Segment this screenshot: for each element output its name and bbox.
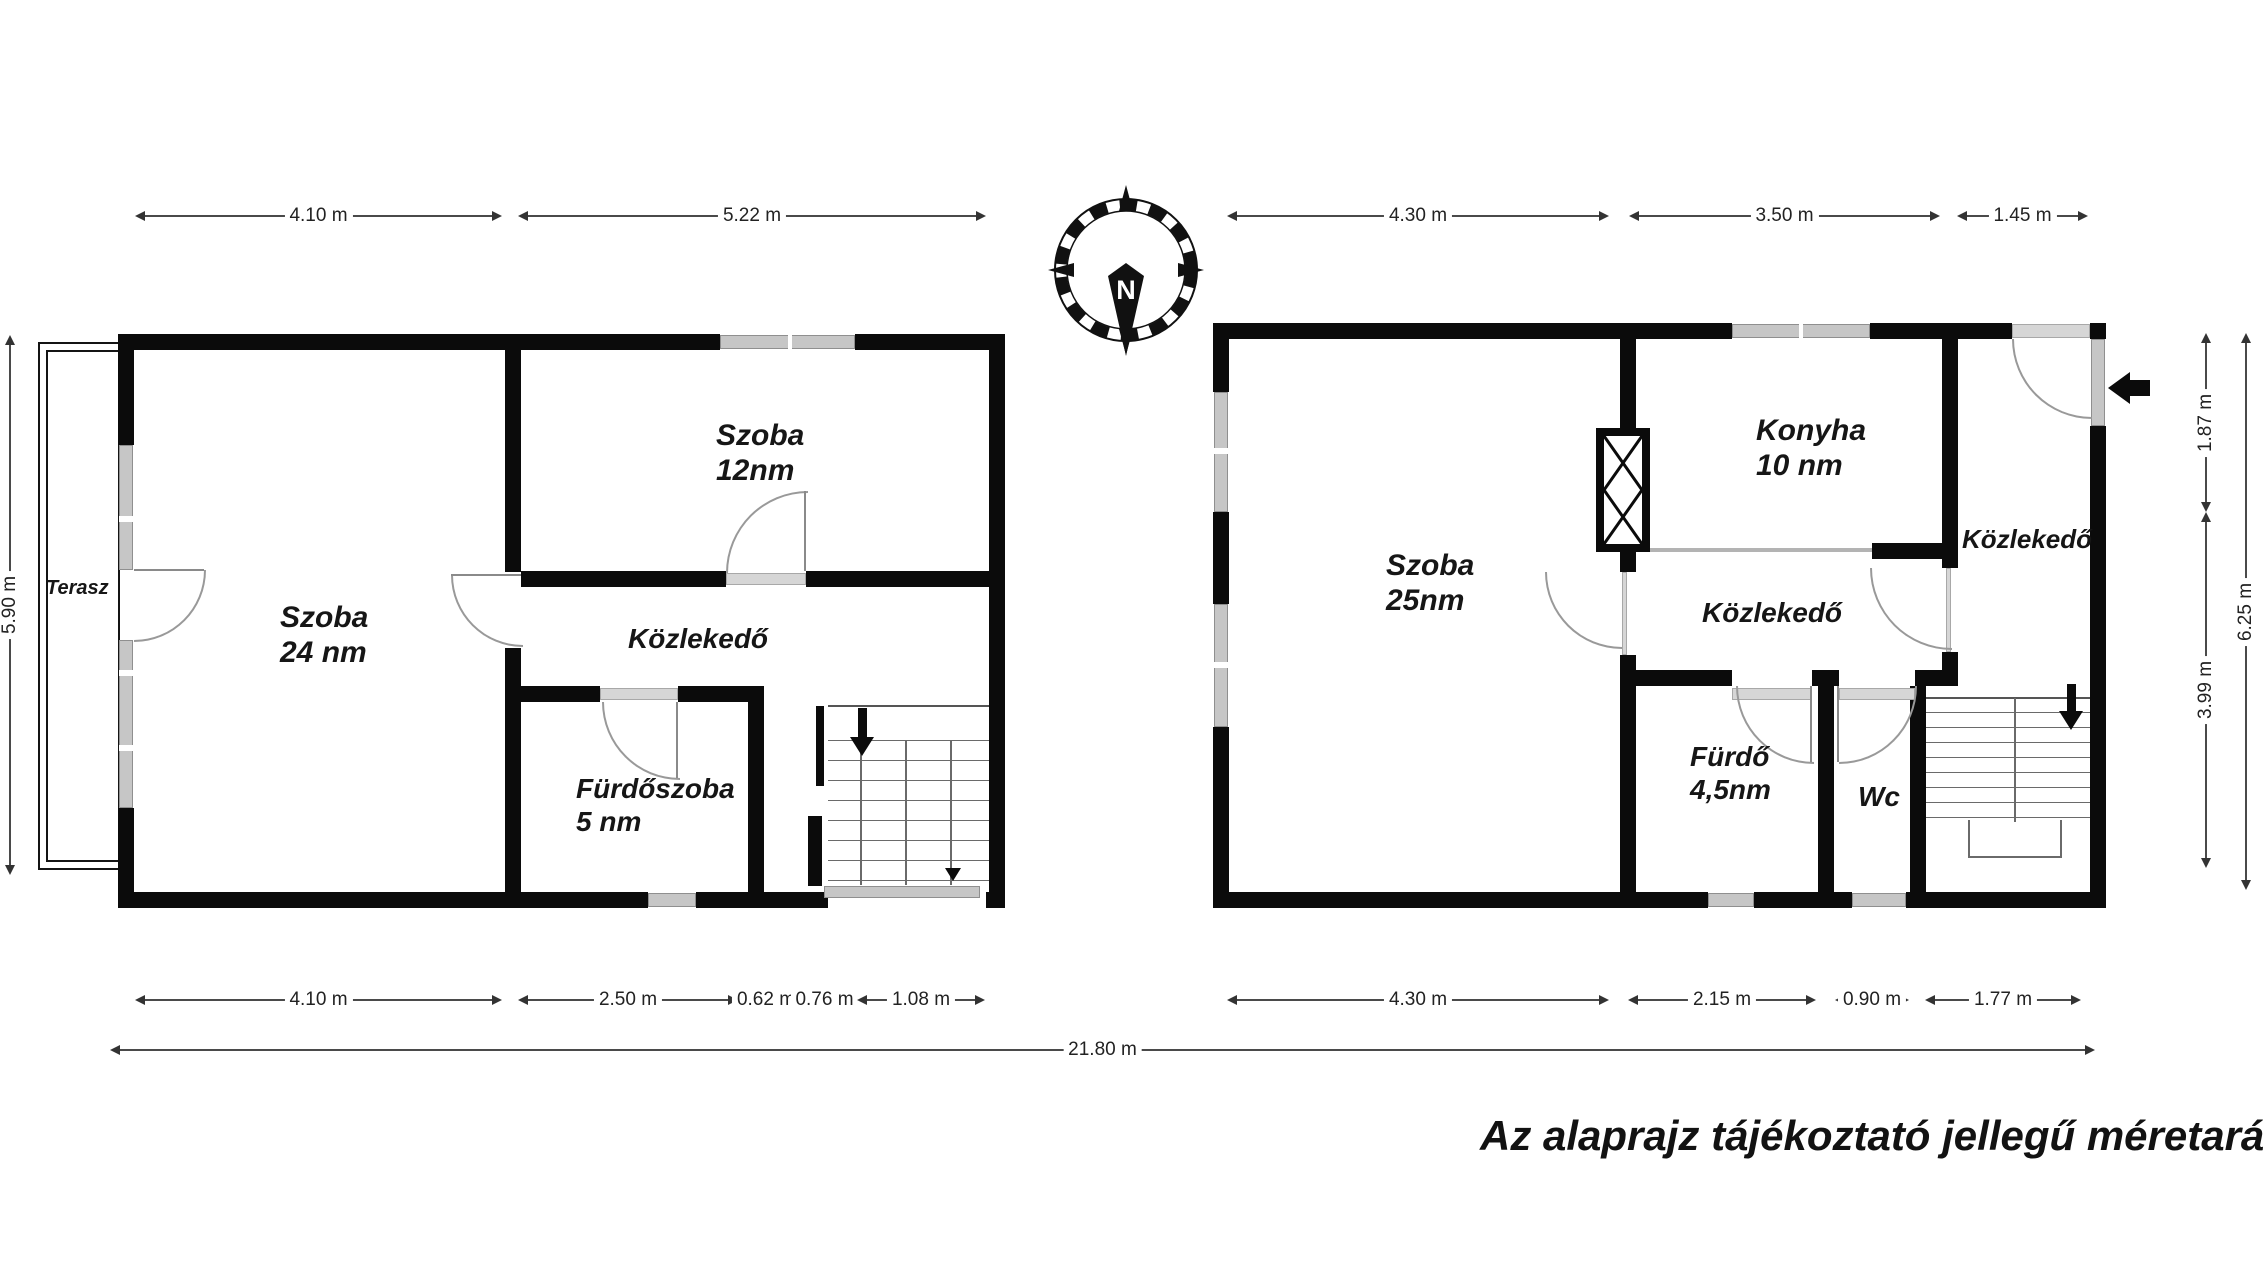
wall <box>2090 426 2106 908</box>
stairs-arrow-icon-right <box>2059 711 2083 730</box>
compass-spike-west <box>1048 263 1074 277</box>
dimension-bottom: 0.90 m <box>1835 990 1909 1010</box>
dimension-vertical: 3.99 m <box>2196 512 2216 868</box>
room-label-szoba24: Szoba 24 nm <box>280 600 368 671</box>
door-leaf <box>134 569 204 571</box>
window-mullion <box>119 670 133 676</box>
door-threshold <box>726 573 806 585</box>
stairs-arrow-shaft-right <box>2067 684 2076 712</box>
door-swing-arc <box>726 491 808 573</box>
door-leaf <box>804 491 806 571</box>
dim-label: 0.76 m <box>790 989 858 1011</box>
wall <box>1213 892 1708 908</box>
dim-label: 6.25 m <box>2235 577 2257 645</box>
door-swing-arc <box>134 570 206 642</box>
wall <box>816 706 824 786</box>
dim-arrow-right <box>1599 995 1609 1005</box>
room-label-wc: Wc <box>1858 780 1900 813</box>
door-leaf <box>1810 686 1812 762</box>
dim-arrow-right <box>492 995 502 1005</box>
wall <box>1910 686 1926 892</box>
floor-plan-canvas: 4.10 m5.22 m4.30 m3.50 m1.45 m4.10 m2.50… <box>0 0 2265 1280</box>
door-swing-arc <box>451 575 523 647</box>
dim-arrow-left <box>1628 995 1638 1005</box>
dimension-bottom: 2.50 m <box>518 990 738 1010</box>
dim-arrow-left <box>1227 211 1237 221</box>
wall <box>1818 686 1834 892</box>
dim-arrow-right <box>976 211 986 221</box>
dim-label: 2.50 m <box>594 989 662 1011</box>
room-label-furdo: Fürdő 4,5nm <box>1690 740 1771 806</box>
dim-arrow-right <box>2078 211 2088 221</box>
wall <box>1754 892 1852 908</box>
window <box>1852 893 1906 907</box>
dim-arrow-down <box>2201 502 2211 512</box>
stairs-arrow-shaft-left <box>858 708 867 738</box>
wall <box>505 350 521 572</box>
window-mullion <box>1214 448 1228 454</box>
dimension-bottom: 0.62 m <box>740 990 792 1010</box>
dimension-bottom: 0.76 m <box>797 990 852 1010</box>
dim-arrow-left <box>135 995 145 1005</box>
wall <box>1213 727 1229 908</box>
room-label-szoba12: Szoba 12nm <box>716 418 804 489</box>
window-mullion <box>788 335 792 349</box>
window <box>119 640 133 808</box>
dim-arrow-left <box>110 1045 120 1055</box>
dim-arrow-left <box>1925 995 1935 1005</box>
room-label-furdoszoba: Fürdőszoba 5 nm <box>576 772 735 838</box>
room-label-terasz: Terasz <box>46 577 109 601</box>
room-label-kozlekedo-left: Közlekedő <box>628 622 768 655</box>
dim-label: 1.08 m <box>887 989 955 1011</box>
wall <box>1213 323 1732 339</box>
wall <box>986 892 1005 908</box>
wall <box>1915 670 1958 686</box>
dim-label: 4.30 m <box>1384 205 1452 227</box>
dim-arrow-left <box>518 211 528 221</box>
dim-label: 5.22 m <box>718 205 786 227</box>
wall <box>505 648 521 892</box>
window-mullion <box>1799 324 1803 338</box>
wall <box>1870 323 2012 339</box>
dim-arrow-up <box>2241 333 2251 343</box>
dimension-vertical: 6.25 m <box>2236 333 2256 890</box>
dim-arrow-up <box>5 335 15 345</box>
dim-label: 1.87 m <box>2195 388 2217 456</box>
dim-arrow-right <box>1806 995 1816 1005</box>
window <box>824 886 980 898</box>
window <box>119 445 133 570</box>
wall <box>1620 670 1732 686</box>
dim-label: 1.77 m <box>1969 989 2037 1011</box>
wall <box>118 892 648 908</box>
chimney-symbol <box>1596 428 1650 552</box>
dim-arrow-right <box>2085 1045 2095 1055</box>
compass-rose: N <box>1044 183 1208 367</box>
door-leaf <box>451 574 521 576</box>
window <box>648 893 696 907</box>
stair-outline <box>1926 697 2090 699</box>
dim-label: 3.99 m <box>2195 656 2217 724</box>
door-swing-arc <box>602 702 680 780</box>
dimension-top: 4.30 m <box>1227 206 1609 226</box>
dim-label: 3.50 m <box>1750 205 1818 227</box>
open-boundary-line <box>1648 548 1872 552</box>
dim-label: 1.45 m <box>1988 205 2056 227</box>
dimension-bottom: 2.15 m <box>1628 990 1816 1010</box>
dim-arrow-right <box>2071 995 2081 1005</box>
stair-stringer <box>905 740 907 885</box>
stairs-arrow-icon-left <box>850 737 874 756</box>
dim-arrow-down <box>2201 858 2211 868</box>
stair-stringer <box>2060 820 2062 858</box>
compass-north-label: N <box>1116 275 1136 305</box>
stair-outline <box>828 705 989 707</box>
wall <box>1620 655 1636 892</box>
dimension-bottom: 4.30 m <box>1227 990 1609 1010</box>
wall <box>521 686 600 702</box>
wall <box>1906 892 2106 908</box>
stair-stringer <box>860 740 862 885</box>
door-leaf <box>1837 686 1839 762</box>
window <box>1708 893 1754 907</box>
window <box>2091 339 2105 426</box>
dimension-top: 1.45 m <box>1957 206 2088 226</box>
dim-arrow-down <box>5 865 15 875</box>
dimension-top: 4.10 m <box>135 206 502 226</box>
door-swing-arc <box>1545 572 1622 649</box>
stair-stringer <box>950 740 952 885</box>
dim-arrow-left <box>857 995 867 1005</box>
door-swing-arc <box>1839 686 1917 764</box>
dim-label: 0.90 m <box>1838 989 1906 1011</box>
door-swing-arc <box>2012 339 2092 419</box>
window-mullion <box>1214 662 1228 668</box>
entry-arrow-shaft <box>2130 380 2150 396</box>
wall <box>2090 323 2106 339</box>
window-mullion <box>119 745 133 751</box>
dim-arrow-right <box>492 211 502 221</box>
dimension-vertical: 1.87 m <box>2196 333 2216 512</box>
wall <box>1812 670 1839 686</box>
room-label-kozlekedo-middle: Közlekedő <box>1702 596 1842 629</box>
dim-arrow-up <box>2201 333 2211 343</box>
dim-label: 4.30 m <box>1384 989 1452 1011</box>
dimension-total: 21.80 m <box>110 1040 2095 1060</box>
dim-label: 4.10 m <box>284 989 352 1011</box>
stairs-end-marker-left <box>945 868 961 881</box>
wall <box>696 892 828 908</box>
wall <box>1213 323 1229 392</box>
dimension-top: 5.22 m <box>518 206 986 226</box>
dim-arrow-up <box>2201 512 2211 522</box>
dimension-bottom: 4.10 m <box>135 990 502 1010</box>
dimension-bottom: 1.08 m <box>857 990 985 1010</box>
disclaimer-text: Az alaprajz tájékoztató jellegű méretará… <box>1480 1112 2260 1160</box>
dim-label: 4.10 m <box>284 205 352 227</box>
dim-arrow-left <box>1957 211 1967 221</box>
wall <box>1872 543 1942 559</box>
wall <box>989 334 1005 908</box>
door-threshold <box>600 688 678 700</box>
wall <box>118 334 720 350</box>
dimension-top: 3.50 m <box>1629 206 1940 226</box>
stair-stringer <box>1968 856 2062 858</box>
dim-label: 2.15 m <box>1688 989 1756 1011</box>
dim-label: 21.80 m <box>1063 1039 1142 1061</box>
door-threshold <box>2012 324 2090 338</box>
stair-stringer <box>1968 820 1970 858</box>
dim-arrow-left <box>135 211 145 221</box>
stairs-left <box>828 740 989 885</box>
wall <box>118 334 134 445</box>
dim-arrow-left <box>1629 211 1639 221</box>
wall <box>806 571 989 587</box>
wall <box>748 686 764 892</box>
wall <box>855 334 1005 350</box>
door-threshold <box>1622 572 1627 655</box>
room-label-kozlekedo-right: Közlekedő <box>1962 524 2092 555</box>
window-mullion <box>119 516 133 522</box>
wall <box>808 816 822 886</box>
dim-arrow-down <box>2241 880 2251 890</box>
dimension-bottom: 1.77 m <box>1925 990 2081 1010</box>
door-leaf <box>676 702 678 778</box>
dim-arrow-right <box>975 995 985 1005</box>
wall <box>1942 339 1958 568</box>
stair-stringer <box>2014 698 2016 822</box>
dim-label: 5.90 m <box>0 571 21 639</box>
dim-arrow-left <box>1227 995 1237 1005</box>
dim-arrow-right <box>1599 211 1609 221</box>
dimension-vertical: 5.90 m <box>0 335 20 875</box>
room-label-szoba25: Szoba 25nm <box>1386 548 1474 619</box>
wall <box>1213 512 1229 604</box>
room-label-konyha: Konyha 10 nm <box>1756 413 1866 484</box>
entry-arrow-icon <box>2108 372 2130 404</box>
door-swing-arc <box>1870 568 1952 650</box>
compass-spike-north <box>1119 185 1133 211</box>
wall <box>521 571 726 587</box>
dim-arrow-right <box>1930 211 1940 221</box>
dim-arrow-left <box>518 995 528 1005</box>
